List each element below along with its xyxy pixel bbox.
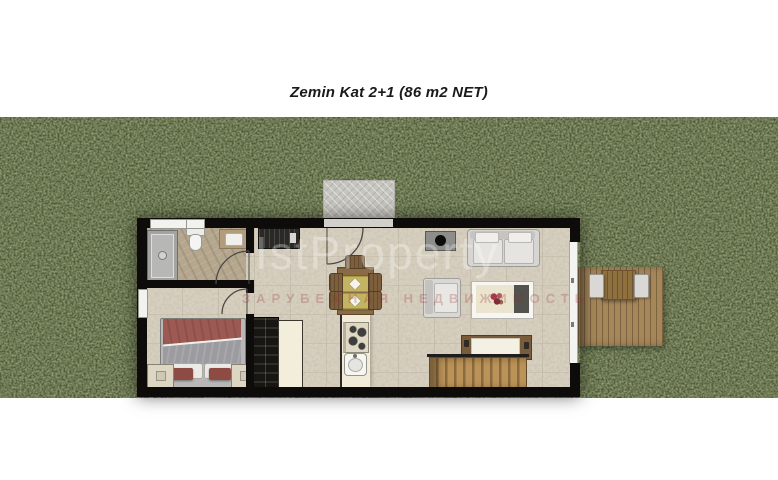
- bedroom-window: [138, 289, 148, 318]
- placemat: [341, 293, 370, 309]
- stove: [343, 322, 369, 353]
- bedroom-door-arc: [221, 288, 248, 315]
- entry-cabinet-item: [290, 233, 296, 243]
- coffee-table-tray: [514, 285, 529, 313]
- stairs: [429, 357, 527, 390]
- closet-door: [278, 320, 303, 390]
- sofa-pillow-left: [475, 232, 499, 243]
- toilet: [186, 227, 203, 250]
- dining-chair-right-2: [368, 291, 382, 310]
- napkin: [349, 295, 360, 306]
- sideboard-bottle: [524, 342, 529, 349]
- wall-post-bottom-right: [570, 363, 580, 397]
- armchair: [423, 278, 461, 318]
- outdoor-table: [601, 270, 636, 300]
- sofa-pillow-right: [508, 232, 532, 243]
- kitchen-sink: [344, 353, 367, 376]
- sofa: [467, 229, 540, 267]
- tv-unit: [425, 231, 456, 251]
- bed-cushion-left: [171, 368, 193, 380]
- toilet-bowl: [189, 234, 202, 251]
- bathroom-window-1: [150, 219, 187, 229]
- outdoor-chair-left: [589, 274, 604, 298]
- kitchen-faucet: [353, 354, 357, 358]
- bathroom-door-arc: [213, 249, 251, 286]
- page-title: Zemin Kat 2+1 (86 m2 NET): [0, 84, 778, 101]
- armchair-seat: [434, 283, 458, 313]
- kitchen-sink-bowl: [348, 358, 363, 372]
- shower-drain: [158, 251, 167, 260]
- dining-chair-left-1: [329, 273, 343, 292]
- placemat: [341, 276, 370, 292]
- entry-cabinet: [258, 228, 300, 249]
- sliding-door-handle: [571, 278, 574, 283]
- bed-cushion-right: [209, 368, 231, 380]
- nightstand-left: [147, 364, 174, 388]
- flower-decoration: [489, 291, 505, 307]
- sideboard-bottle: [464, 340, 469, 347]
- sink-basin: [225, 233, 243, 246]
- wall-bottom: [137, 387, 580, 397]
- dining-chair-right-1: [368, 273, 382, 292]
- dining-chair-left-2: [329, 291, 343, 310]
- wall-post-top-right: [570, 218, 580, 242]
- tv-speaker-circle: [435, 235, 446, 246]
- outdoor-chair-right: [634, 274, 649, 298]
- coffee-table: [471, 281, 534, 319]
- floor-plan-image: Zemin Kat 2+1 (86 m2 NET): [0, 0, 778, 480]
- wardrobe-divider: [265, 318, 266, 389]
- armchair-back: [425, 280, 433, 314]
- sink-vanity: [219, 229, 248, 249]
- glass-wall-right: [569, 240, 578, 365]
- wall-bedroom-right: [246, 314, 254, 387]
- shower: [147, 230, 178, 282]
- bathroom-window-2: [186, 219, 205, 229]
- napkin: [349, 278, 360, 289]
- wardrobe: [253, 317, 279, 390]
- nightstand-knob: [156, 371, 166, 381]
- entrance-door-arc: [326, 226, 365, 265]
- sliding-door-handle: [571, 322, 574, 327]
